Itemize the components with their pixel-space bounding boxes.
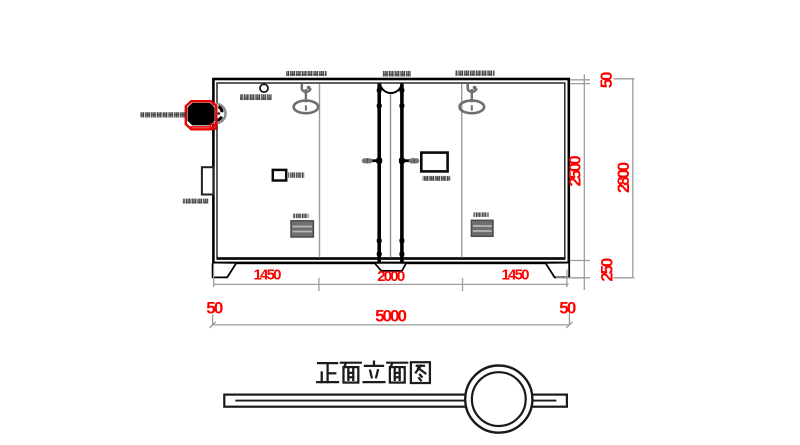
svg-text:2800: 2800 (614, 162, 633, 193)
svg-text:2000: 2000 (377, 268, 405, 285)
svg-text:5000: 5000 (375, 306, 406, 325)
svg-text:1450: 1450 (502, 267, 530, 284)
svg-text:1450: 1450 (254, 267, 282, 284)
svg-text:50: 50 (597, 72, 616, 88)
svg-text:50: 50 (206, 299, 223, 318)
svg-text:2500: 2500 (566, 156, 585, 187)
svg-text:50: 50 (559, 299, 576, 318)
svg-text:250: 250 (597, 258, 616, 282)
